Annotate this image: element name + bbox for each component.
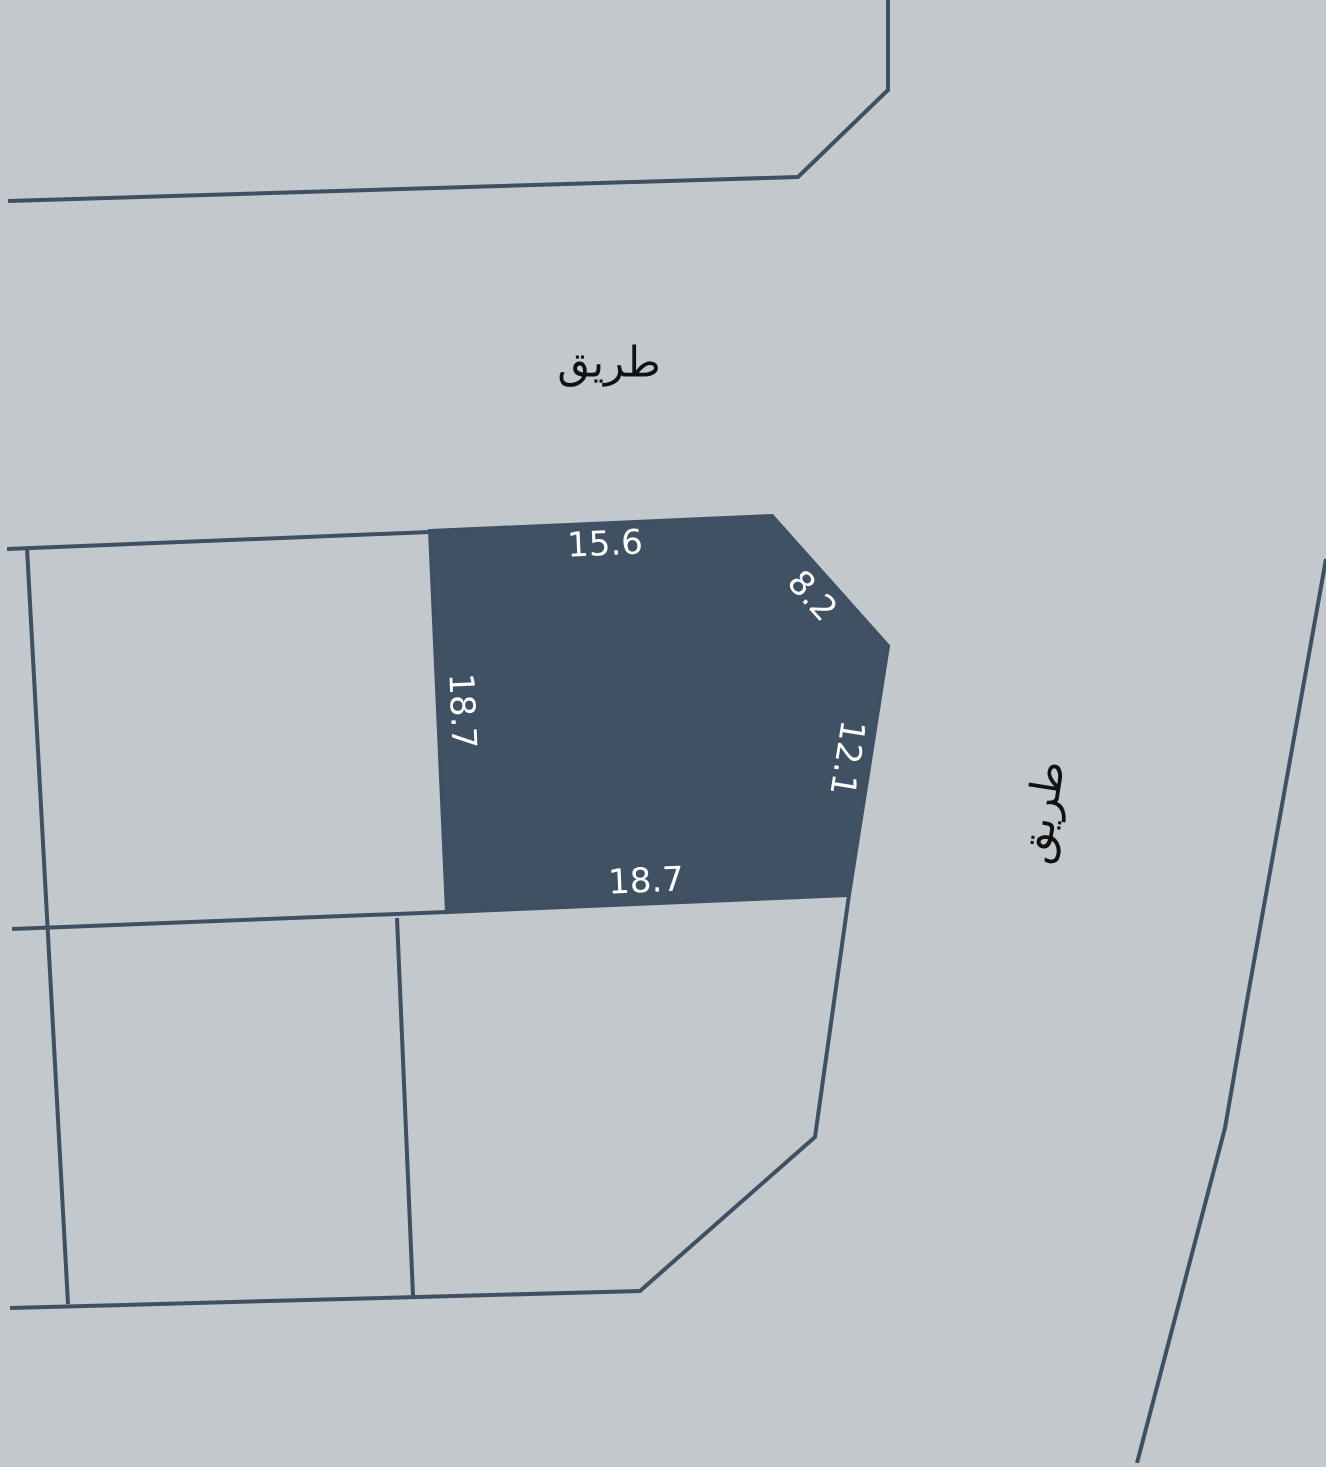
lower-parcel-divider — [397, 918, 413, 1296]
adjacent-parcel-top-boundary — [7, 532, 430, 549]
parcel-dimension-left: 18.7 — [440, 672, 483, 749]
mid-parcel-boundary — [12, 912, 447, 929]
parcel-dimension-top: 15.6 — [566, 522, 643, 565]
lower-block-boundary — [10, 895, 849, 1308]
parcel-map-svg — [0, 0, 1326, 1463]
road-label-top: طريق — [557, 338, 660, 387]
road-edge-right — [1137, 559, 1326, 1463]
road-edge-top — [8, 0, 888, 201]
parcel-dimension-bottom: 18.7 — [607, 859, 684, 902]
cadastral-map: طريق طريق 15.6 8.2 18.7 12.1 18.7 — [0, 0, 1326, 1463]
